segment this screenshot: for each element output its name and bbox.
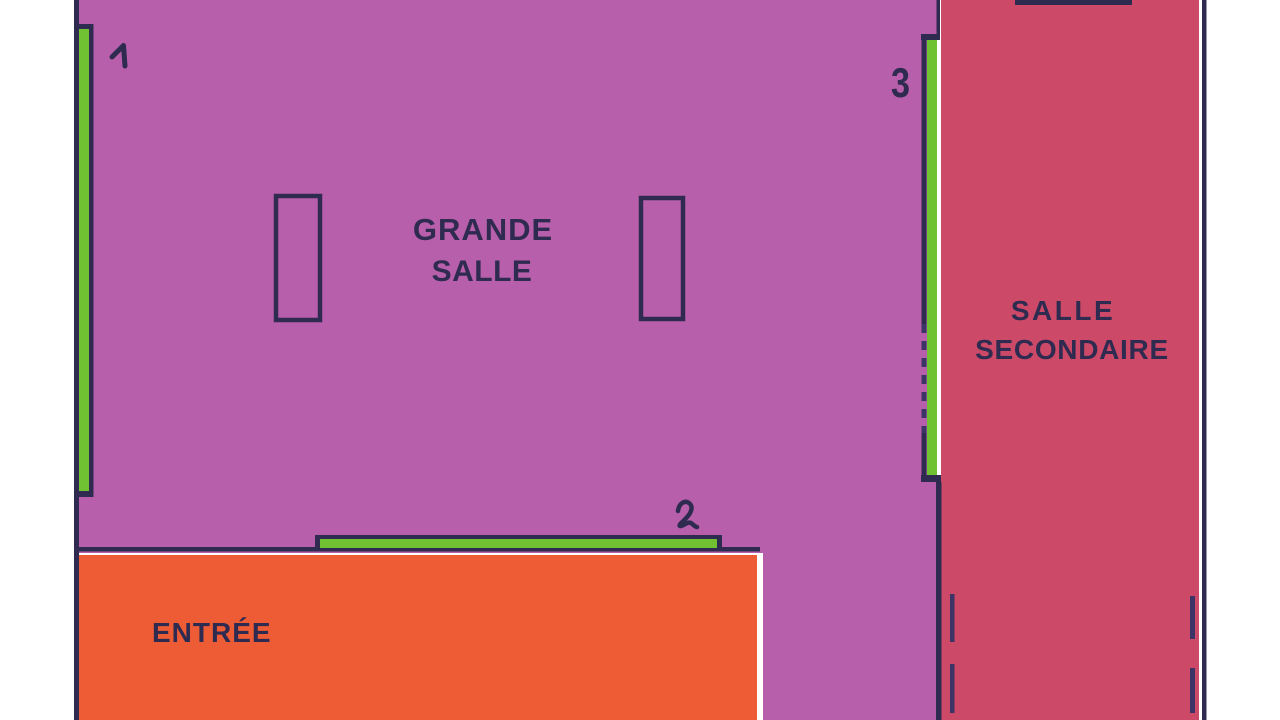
- svg-text:3: 3: [891, 59, 910, 106]
- svg-text:SALLE: SALLE: [1011, 295, 1115, 326]
- svg-text:GRANDE: GRANDE: [413, 212, 553, 247]
- svg-text:SALLE: SALLE: [432, 255, 533, 288]
- svg-text:SECONDAIRE: SECONDAIRE: [975, 334, 1169, 365]
- svg-text:ENTRÉE: ENTRÉE: [152, 617, 272, 648]
